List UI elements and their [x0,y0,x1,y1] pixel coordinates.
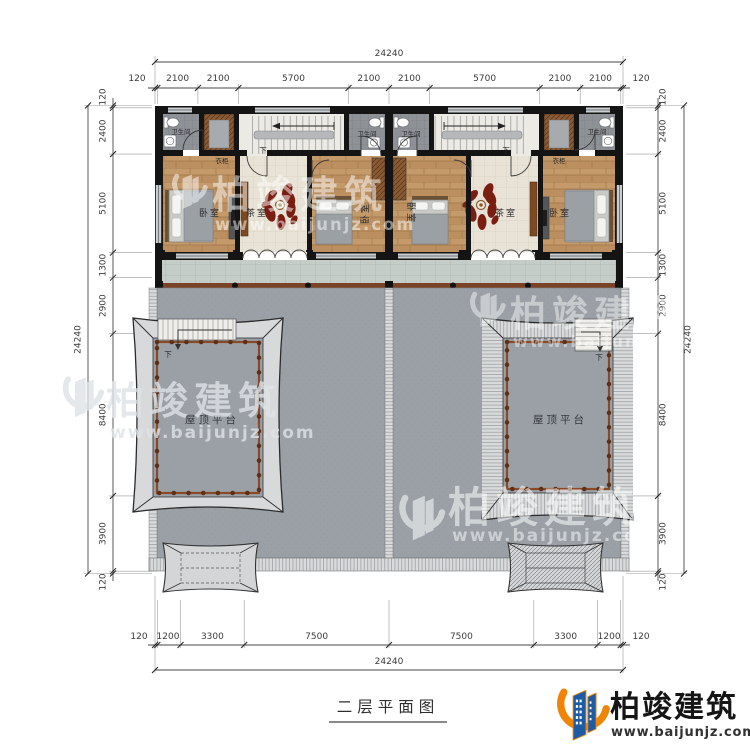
room-label-bathroom: 卫生间 [171,127,190,136]
dim-left-seg: 1300 [99,253,109,276]
watermark-company: 柏竣建筑 [106,379,282,423]
dim-top-seg: 2100 [548,74,571,84]
room-label-closet: 衣柜 [216,156,229,165]
watermark-website: www.baijunjz.com [452,526,658,546]
dim-right-seg: 2400 [659,119,669,142]
drawing-title: 二层平面图 [337,698,440,716]
dim-bottom-seg: 7500 [450,632,473,642]
dim-top-seg: 120 [632,74,649,84]
room-label-bedroom: 卧室 [549,207,571,219]
dim-left-seg: 2900 [99,294,109,317]
dim-right-seg: 5100 [659,192,669,215]
dim-right-seg: 8400 [659,403,669,426]
dim-bottom-seg: 3300 [201,632,224,642]
floor-plan-drawing: 24240 120 2100 2100 5700 2100 2100 5700 … [0,0,750,750]
brand-company-name: 柏竣建筑 [610,690,738,725]
toilet-icon [369,118,381,127]
dim-left-seg: 120 [99,88,109,105]
bottom-dimension-row: 120 1200 3300 7500 7500 3300 1200 120 24… [130,632,649,667]
dim-right-seg: 120 [659,573,669,590]
dim-left-seg: 3900 [99,522,109,545]
dim-top-seg: 2100 [166,74,189,84]
watermark-company: 柏竣建筑 [448,483,640,532]
watermark-website: www.baijunjz.com [110,423,316,443]
room-label-bathroom: 卫生间 [357,129,376,138]
watermark-logo-icon [66,378,102,417]
dim-left-seg: 120 [99,573,109,590]
dim-left-total: 24240 [74,325,84,354]
dim-left-seg: 2400 [99,119,109,142]
dim-right-seg: 1300 [659,253,669,276]
dim-top-seg: 2100 [207,74,230,84]
dim-bottom-seg: 3300 [554,632,577,642]
brand-website: www.baijunjz.com [611,725,750,740]
brand-logo-icon [561,690,606,740]
canopy-left [163,543,258,592]
dim-bottom-seg: 1200 [157,632,180,642]
toilet-icon [599,118,611,127]
left-dimension-column: 120 2400 5100 1300 2900 8400 3900 120 24… [74,88,109,590]
stair-down-label: 下 [259,146,267,155]
dim-left-seg: 5100 [99,192,109,215]
dim-bottom-seg: 120 [632,632,649,642]
tea-room-right-sideboard [530,182,537,236]
footer-brand: 柏竣建筑 www.baijunjz.com [561,690,750,740]
wardrobe-inner-right [393,158,406,200]
terrace-label-right: 屋顶平台 [533,413,587,426]
dim-top-seg: 2100 [357,74,380,84]
room-label-bathroom: 卫生间 [401,129,420,138]
closet-right-interior [549,120,569,148]
watermark-website: www.baijunjz.com [215,215,416,234]
dim-top-seg: 2100 [398,74,421,84]
dim-top-total: 24240 [375,49,404,59]
terrace-down-label: 下 [595,353,603,362]
dim-bottom-seg: 7500 [305,632,328,642]
bed-inner-right-bedroom [412,196,448,244]
stairwell-right [434,116,524,154]
canopy-right [508,543,603,592]
top-dimension-row: 24240 120 2100 2100 5700 2100 2100 5700 … [128,49,649,84]
corridor-floor [162,260,616,283]
toilet-icon [397,118,409,127]
dim-top-seg: 5700 [282,74,305,84]
room-label-bathroom: 卫生间 [587,127,606,136]
dim-bottom-total: 24240 [375,657,404,667]
watermark-website: www.baijunjz.com [513,332,708,351]
dim-top-seg: 5700 [473,74,496,84]
closet-left-interior [209,120,229,148]
stair-down-label: 下 [502,146,510,155]
watermark-company: 柏竣建筑 [510,294,678,335]
dim-top-seg: 120 [128,74,145,84]
dim-right-seg: 120 [659,88,669,105]
dim-bottom-seg: 1200 [598,632,621,642]
dim-top-seg: 2100 [589,74,612,84]
room-label-tea-room: 茶室 [495,207,517,219]
watermark-company: 柏竣建筑 [212,173,388,217]
floor-plan-page: 24240 120 2100 2100 5700 2100 2100 5700 … [0,0,750,750]
toilet-icon [167,118,179,127]
terrace-divider [385,288,393,558]
room-label-closet: 衣柜 [553,156,566,165]
dim-bottom-seg: 120 [130,632,147,642]
dim-right-seg: 3900 [659,522,669,545]
terrace-down-label: 下 [164,350,172,359]
drawing-title-block: 二层平面图 [329,698,447,722]
